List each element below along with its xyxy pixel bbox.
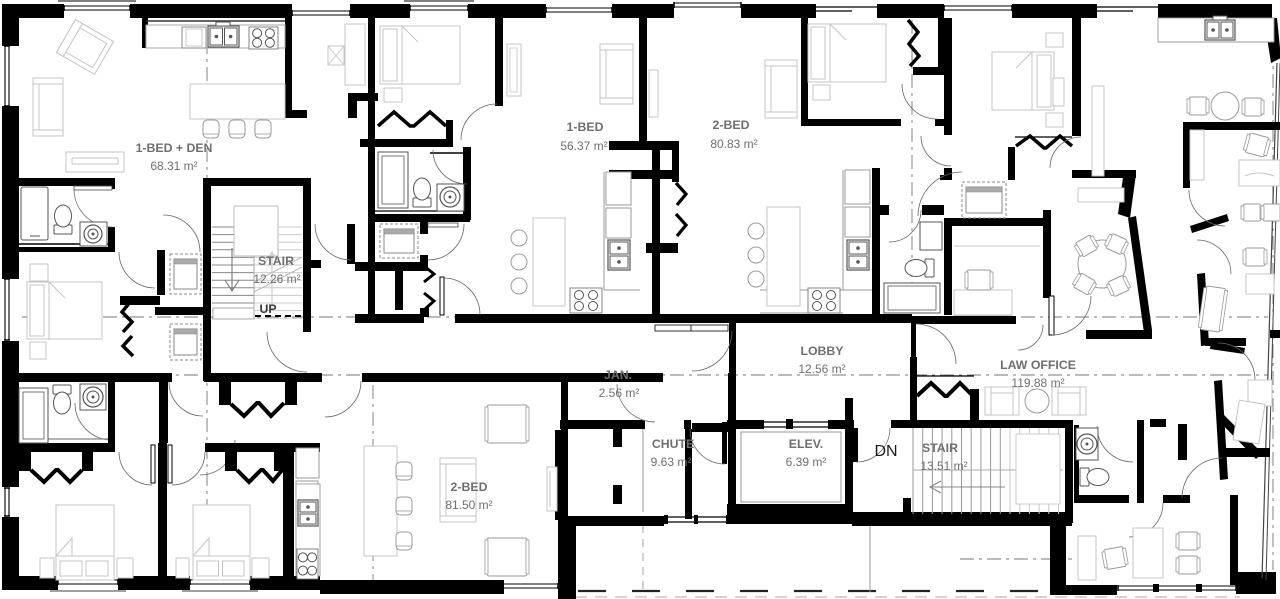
svg-text:68.31 m²: 68.31 m² — [150, 159, 197, 173]
svg-text:DN: DN — [874, 443, 897, 460]
svg-text:CHUTE: CHUTE — [652, 437, 694, 451]
svg-text:56.37 m²: 56.37 m² — [560, 139, 607, 153]
svg-text:LOBBY: LOBBY — [800, 344, 843, 358]
svg-text:2-BED: 2-BED — [713, 118, 750, 132]
svg-text:2-BED: 2-BED — [451, 480, 488, 494]
svg-text:81.50 m²: 81.50 m² — [445, 498, 492, 512]
svg-text:JAN.: JAN. — [604, 368, 632, 382]
svg-text:UP: UP — [259, 302, 276, 316]
svg-text:119.88 m²: 119.88 m² — [1011, 376, 1064, 390]
svg-text:12.56 m²: 12.56 m² — [798, 362, 845, 376]
svg-text:80.83 m²: 80.83 m² — [710, 137, 757, 151]
svg-text:STAIR: STAIR — [258, 254, 294, 268]
svg-text:1-BED + DEN: 1-BED + DEN — [136, 141, 213, 155]
svg-text:2.56 m²: 2.56 m² — [599, 386, 640, 400]
svg-text:1-BED: 1-BED — [567, 120, 604, 134]
svg-text:12.26 m²: 12.26 m² — [253, 272, 300, 286]
svg-text:9.63 m²: 9.63 m² — [651, 455, 692, 469]
svg-text:LAW OFFICE: LAW OFFICE — [1000, 358, 1076, 372]
svg-text:ELEV.: ELEV. — [789, 437, 823, 451]
svg-text:6.39 m²: 6.39 m² — [786, 455, 827, 469]
svg-text:STAIR: STAIR — [922, 441, 958, 455]
svg-text:13.51 m²: 13.51 m² — [920, 459, 967, 473]
